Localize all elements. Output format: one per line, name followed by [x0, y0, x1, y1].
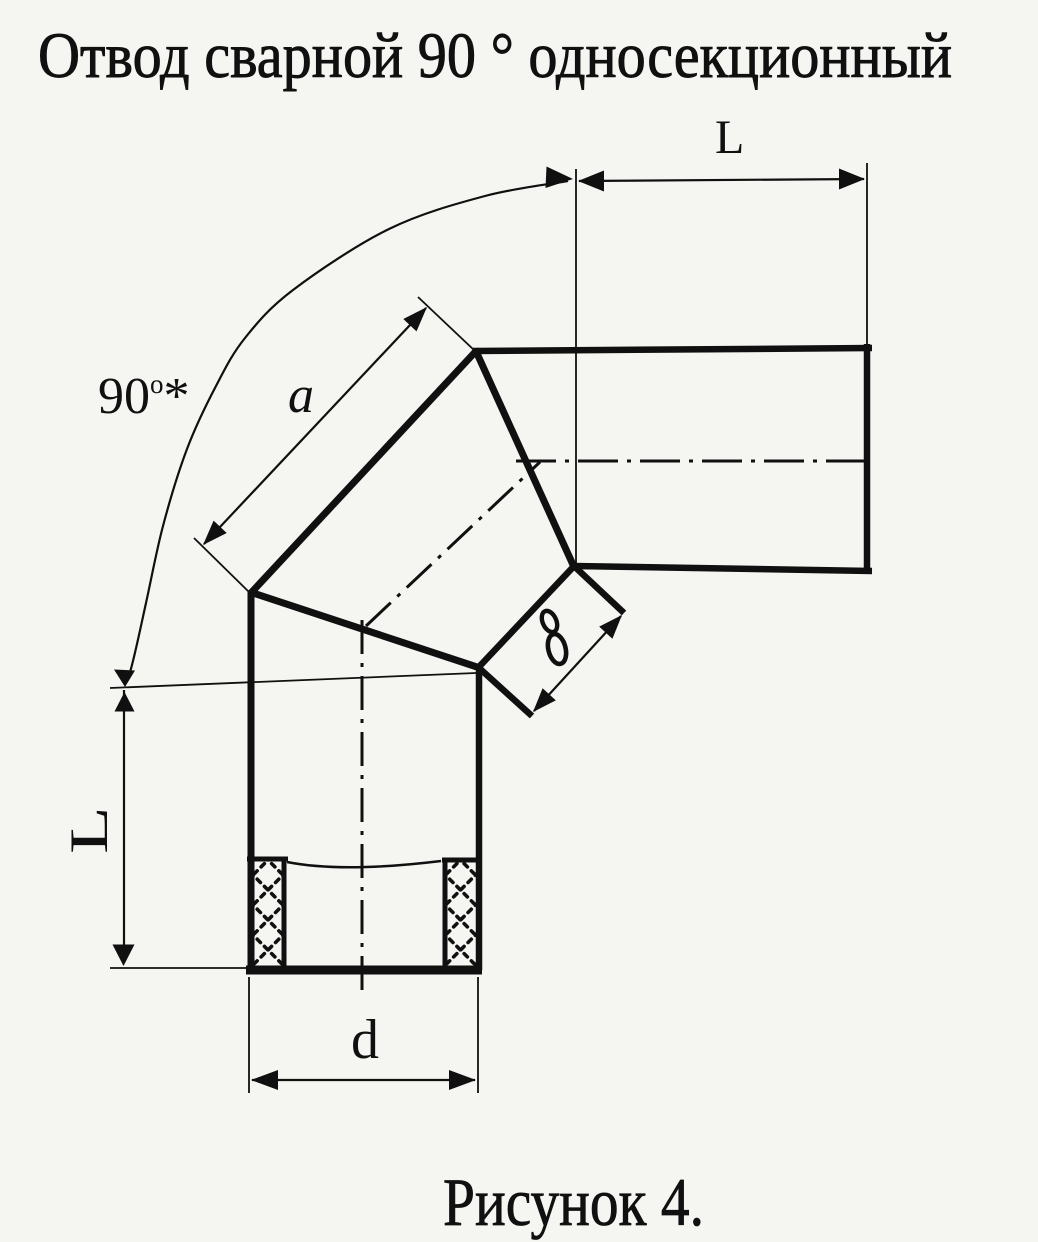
svg-text:L: L	[715, 111, 744, 164]
svg-text:L: L	[59, 806, 119, 854]
svg-text:a: a	[288, 367, 314, 424]
svg-text:d: d	[351, 1009, 379, 1071]
svg-text:Рисунок 4.: Рисунок 4.	[443, 1164, 704, 1240]
svg-text:90o*: 90o*	[98, 368, 190, 425]
svg-text:Отвод сварной 90 ° односекцион: Отвод сварной 90 ° односекционный	[38, 20, 952, 92]
